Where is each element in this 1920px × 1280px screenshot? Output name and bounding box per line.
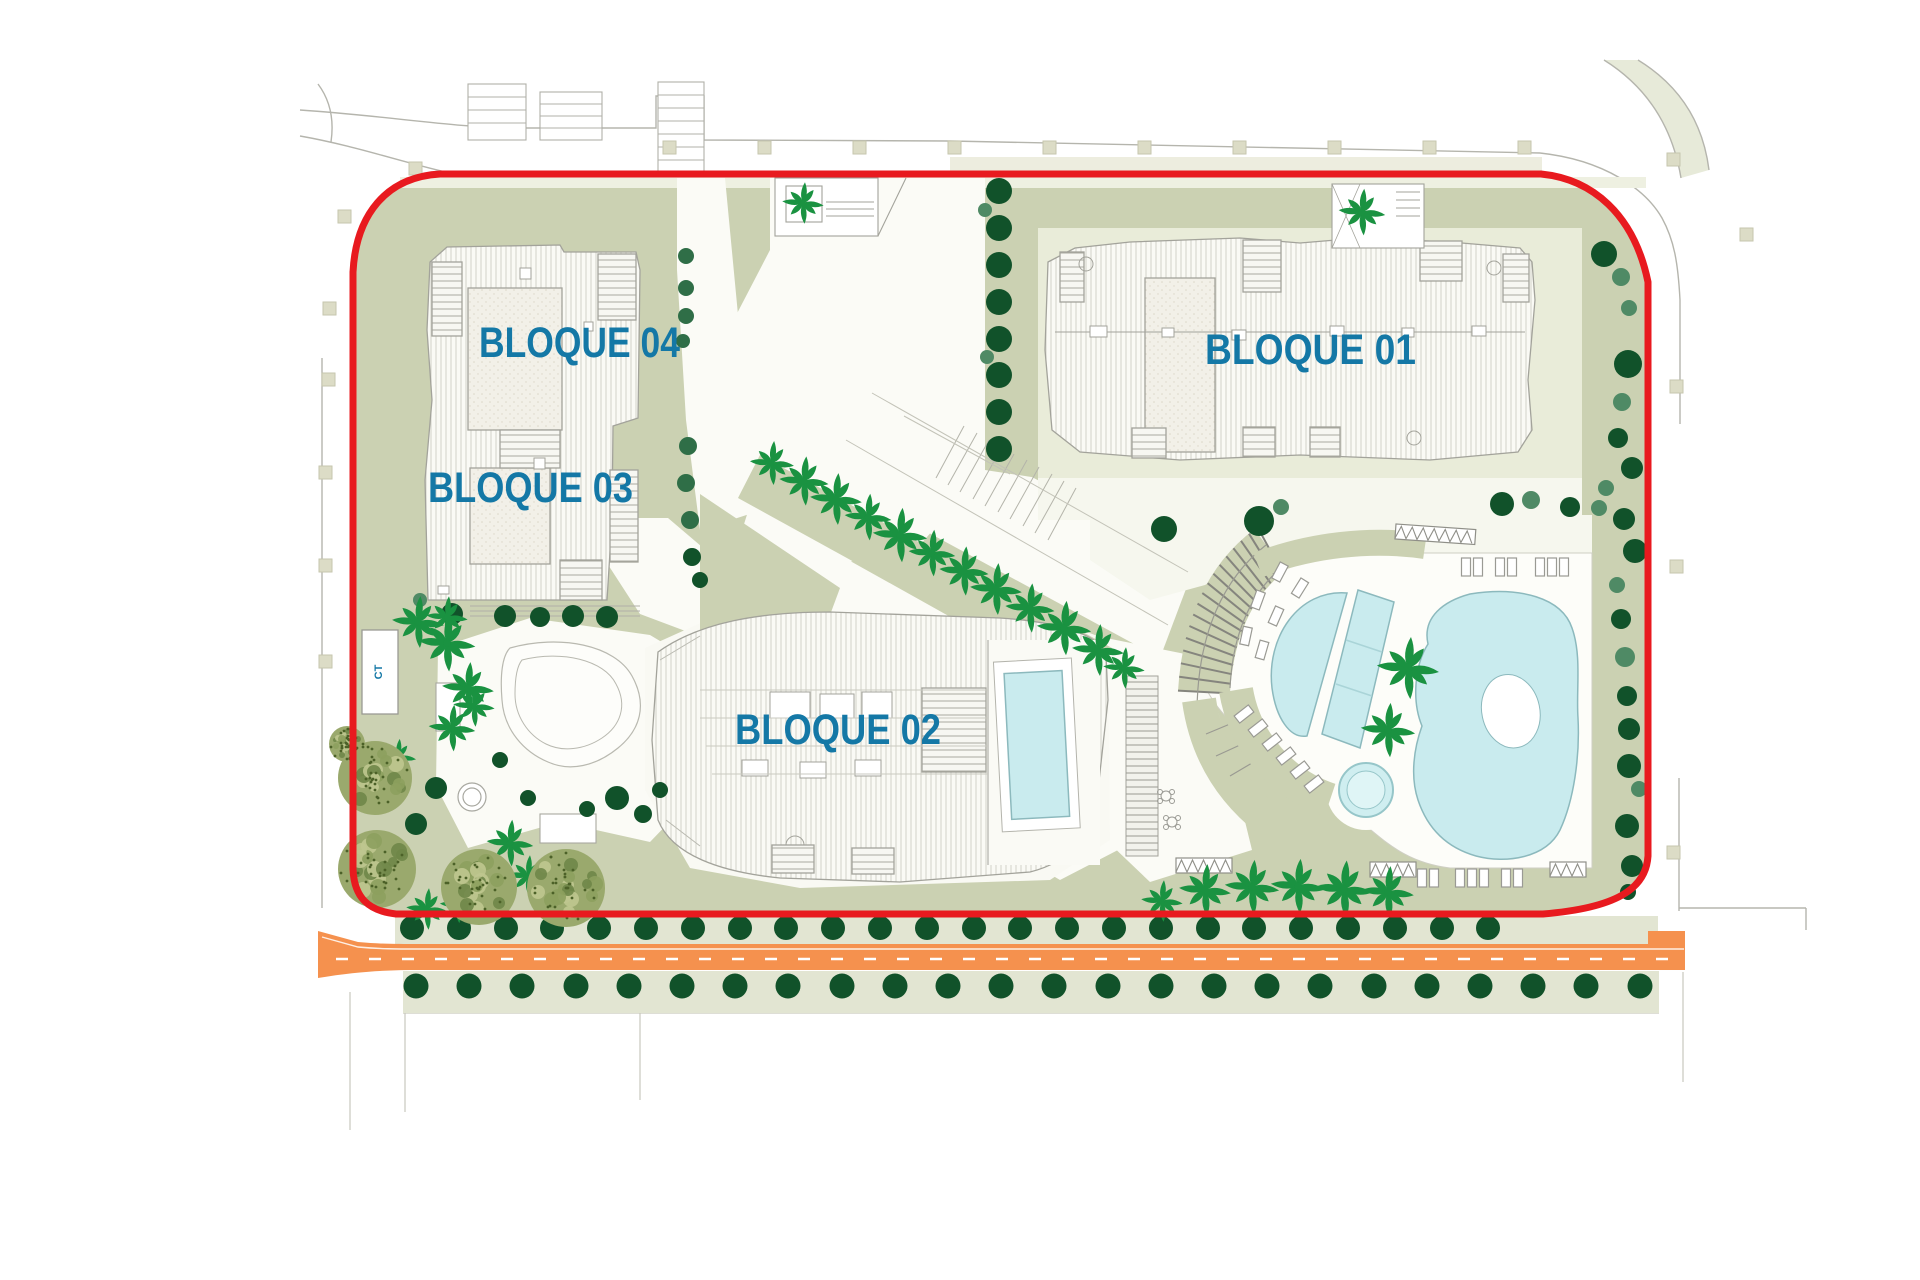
svg-text:BLOQUE 01: BLOQUE 01 <box>1205 326 1416 374</box>
svg-text:BLOQUE 03: BLOQUE 03 <box>428 464 633 512</box>
svg-text:BLOQUE 04: BLOQUE 04 <box>479 319 680 367</box>
svg-text:BLOQUE 02: BLOQUE 02 <box>735 706 941 754</box>
svg-text:CT: CT <box>373 664 385 679</box>
